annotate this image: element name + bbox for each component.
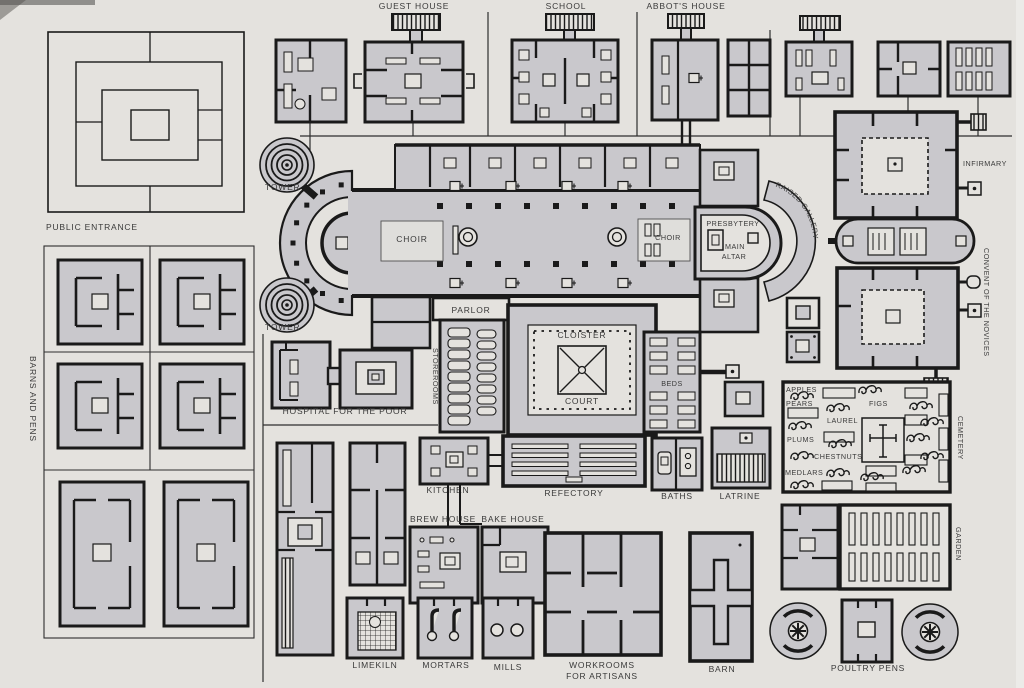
choir-west-label: CHOIR — [396, 234, 427, 244]
barns-and-pens-area: BARNS AND PENS — [28, 246, 254, 638]
brew-house-label: BREW HOUSE — [410, 514, 476, 524]
pen-building — [160, 364, 244, 448]
poultry-pens-label: POULTRY PENS — [831, 663, 905, 673]
school-label: SCHOOL — [546, 1, 587, 11]
school-porch — [546, 14, 594, 30]
monastery-plan-figure: PUBLIC ENTRANCE BARNS AND PENS GUEST HOU… — [0, 0, 1024, 688]
pears-label: PEARS — [786, 399, 813, 408]
medlars-label: MEDLARS — [785, 468, 823, 477]
hospital-for-the-poor-label: HOSPITAL FOR THE POOR — [283, 406, 408, 416]
pen-building — [58, 260, 142, 344]
public-entrance-label: PUBLIC ENTRANCE — [46, 222, 138, 232]
small-east-buildings — [725, 382, 763, 416]
beds-label: BEDS — [661, 379, 683, 388]
parlor-label: PARLOR — [451, 305, 490, 315]
baths-label: BATHS — [661, 491, 693, 501]
convent-of-the-novices-label: CONVENT OF THE NOVICES — [982, 248, 991, 357]
parlor-building: PARLOR — [433, 298, 509, 320]
poultry-pen-round — [770, 603, 826, 659]
tower-north-label: TOWER — [265, 182, 300, 192]
chestnuts-label: CHESTNUTS — [814, 452, 862, 461]
choir-east-label: CHOIR — [655, 233, 681, 242]
novices-chapel — [836, 219, 974, 263]
cemetery-label: CEMETERY — [956, 416, 965, 460]
hospital-for-the-poor-building: HOSPITAL FOR THE POOR — [272, 342, 412, 416]
garden-building: GARDEN — [782, 505, 963, 589]
garden-label: GARDEN — [954, 527, 963, 561]
mortars-building: MORTARS — [418, 598, 472, 670]
bake-house-label: BAKE HOUSE — [481, 514, 544, 524]
main-altar — [708, 230, 723, 250]
mills-label: MILLS — [494, 662, 523, 672]
plums-label: PLUMS — [787, 435, 814, 444]
barn-building — [164, 482, 248, 626]
court-label: COURT — [565, 396, 599, 406]
pen-building — [58, 364, 142, 448]
refectory-label: REFECTORY — [544, 488, 603, 498]
workshop-annex-building — [350, 443, 405, 585]
barn-building — [60, 482, 144, 626]
barn-label: BARN — [709, 664, 736, 674]
cemetery-orchard: APPLES PEARS FIGS LAUREL PLUMS CHESTNUTS… — [783, 382, 965, 492]
barns-and-pens-label: BARNS AND PENS — [28, 356, 38, 442]
storerooms-label: STOREROOMS — [431, 348, 440, 405]
granary-building — [277, 443, 333, 655]
laurel-label: LAUREL — [827, 416, 858, 425]
cloister: CLOISTER COURT — [508, 305, 656, 435]
bake-house-building: BAKE HOUSE — [481, 514, 548, 603]
abbots-house-label: ABBOT'S HOUSE — [646, 1, 725, 11]
figs-label: FIGS — [869, 399, 888, 408]
limekiln-label: LIMEKILN — [352, 660, 397, 670]
workrooms-label-2: FOR ARTISANS — [566, 671, 638, 681]
north-annex — [395, 145, 700, 190]
guest-house-label: GUEST HOUSE — [379, 1, 450, 11]
font-basin — [459, 228, 477, 246]
presbytery-label: PRESBYTERY — [706, 219, 759, 228]
storerooms-building: STOREROOMS — [431, 320, 504, 432]
poultry-pen-round — [902, 604, 958, 660]
mortars-label: MORTARS — [422, 660, 469, 670]
workrooms-label-1: WORKROOMS — [569, 660, 635, 670]
latrine-label: LATRINE — [720, 491, 761, 501]
apples-label: APPLES — [786, 385, 817, 394]
cloister-label: CLOISTER — [558, 330, 607, 340]
barn-building: BARN — [690, 533, 752, 674]
brew-house-building: BREW HOUSE — [410, 514, 478, 603]
limekiln-building: LIMEKILN — [347, 598, 403, 670]
abbots-house-porch — [668, 14, 704, 28]
pen-building — [160, 260, 244, 344]
infirmary-label: INFIRMARY — [963, 159, 1007, 168]
plan-svg: PUBLIC ENTRANCE BARNS AND PENS GUEST HOU… — [0, 0, 1024, 688]
font-basin — [608, 228, 626, 246]
main-altar-label-1: MAIN — [725, 242, 745, 251]
main-altar-label-2: ALTAR — [722, 252, 747, 261]
tower-south-label: TOWER — [265, 322, 300, 332]
northwest-building — [276, 40, 346, 122]
guest-house-porch — [392, 14, 440, 30]
